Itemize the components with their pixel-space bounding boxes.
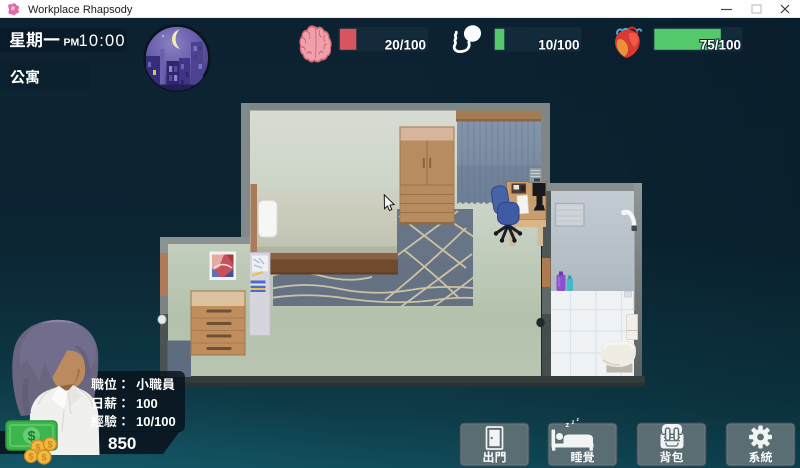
svg-text:$: $ bbox=[41, 453, 46, 463]
svg-text:10/100: 10/100 bbox=[136, 414, 176, 429]
svg-text:$: $ bbox=[47, 440, 52, 450]
svg-text:10/100: 10/100 bbox=[538, 38, 579, 53]
svg-text:100: 100 bbox=[136, 396, 158, 411]
svg-text:$: $ bbox=[28, 452, 33, 462]
svg-text:850: 850 bbox=[108, 434, 136, 453]
svg-text:PM: PM bbox=[64, 37, 80, 49]
svg-text:10:00: 10:00 bbox=[79, 32, 126, 50]
svg-text:z: z bbox=[572, 420, 575, 426]
svg-text:20/100: 20/100 bbox=[385, 38, 426, 53]
svg-text:z: z bbox=[566, 420, 570, 429]
svg-text:Workplace Rhapsody: Workplace Rhapsody bbox=[28, 4, 133, 16]
svg-text:$: $ bbox=[35, 443, 40, 453]
svg-text:75/100: 75/100 bbox=[700, 38, 741, 53]
